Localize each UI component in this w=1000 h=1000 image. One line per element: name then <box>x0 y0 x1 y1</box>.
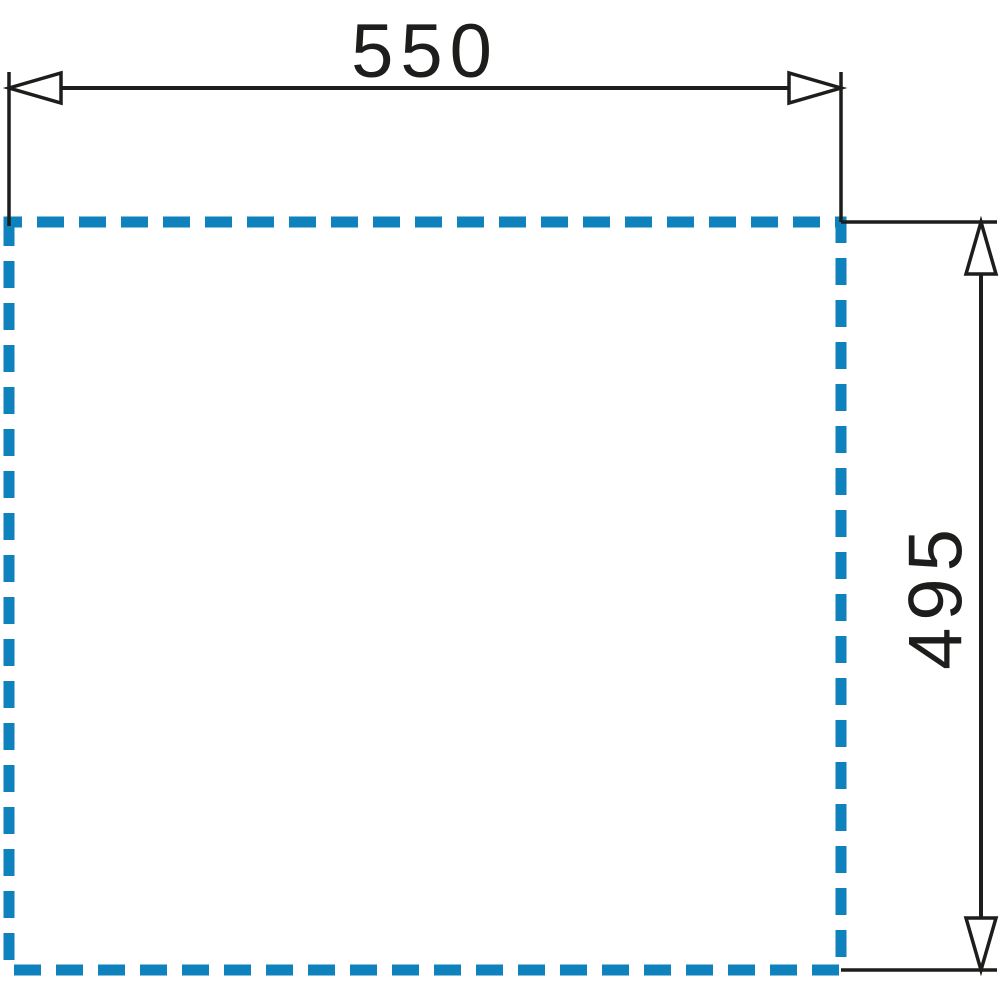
arrowhead-left-icon <box>9 73 61 103</box>
width-dimension: 550 <box>9 9 841 226</box>
arrowhead-up-icon <box>966 222 996 274</box>
dimension-diagram-page: 550 495 <box>0 0 1000 1000</box>
arrowhead-right-icon <box>789 73 841 103</box>
arrowhead-down-icon <box>966 918 996 970</box>
width-dimension-label: 550 <box>351 9 499 94</box>
cutout-outline-square <box>9 222 841 970</box>
height-dimension: 495 <box>841 222 997 970</box>
dimension-diagram: 550 495 <box>0 0 1000 1000</box>
height-dimension-label: 495 <box>894 522 979 670</box>
